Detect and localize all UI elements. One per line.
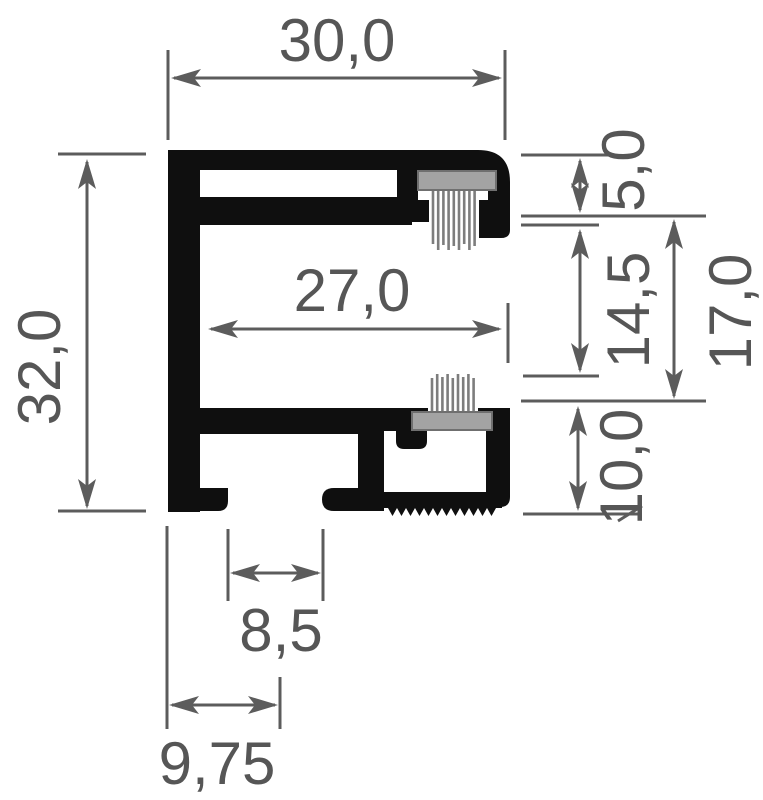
dim-label-bottom-section: 10,0: [592, 409, 652, 526]
dim-label-foot-offset: 9,75: [159, 734, 276, 794]
dim-label-foot-gap: 8,5: [239, 601, 322, 661]
bottom-brush-holder: [412, 412, 492, 430]
profile-stub: [397, 164, 418, 222]
spline-slot-cavity: [207, 170, 397, 197]
top-brush-bristles: [433, 190, 475, 250]
left-chamber-cavity: [200, 434, 358, 488]
profile-slot-bottom-wall: [197, 197, 412, 225]
bottom-brush-seal: [412, 372, 492, 430]
dim-label-side-depth: 17,0: [701, 254, 761, 371]
dim-label-top-flange: 5,0: [594, 128, 654, 211]
dim-label-width-total: 30,0: [279, 11, 396, 71]
dim-label-opening: 14,5: [599, 252, 659, 369]
foot-gap-cavity: [228, 488, 322, 512]
dim-label-width-inner: 27,0: [294, 261, 411, 321]
profile-serrated-edge: [386, 500, 496, 516]
top-brush-holder: [418, 171, 496, 190]
bottom-brush-bristles: [432, 374, 474, 414]
technical-drawing-canvas: 30,0 32,0 27,0 5,0 14,5 17,0 10,0 8,5 9,…: [0, 0, 763, 800]
profile-left-foot: [196, 488, 228, 511]
profile-middle-foot: [322, 488, 384, 511]
right-chamber-step: [396, 431, 427, 449]
dim-label-height-total: 32,0: [10, 309, 70, 426]
profile-drawing: [0, 0, 763, 800]
profile-left-wall: [168, 150, 200, 512]
